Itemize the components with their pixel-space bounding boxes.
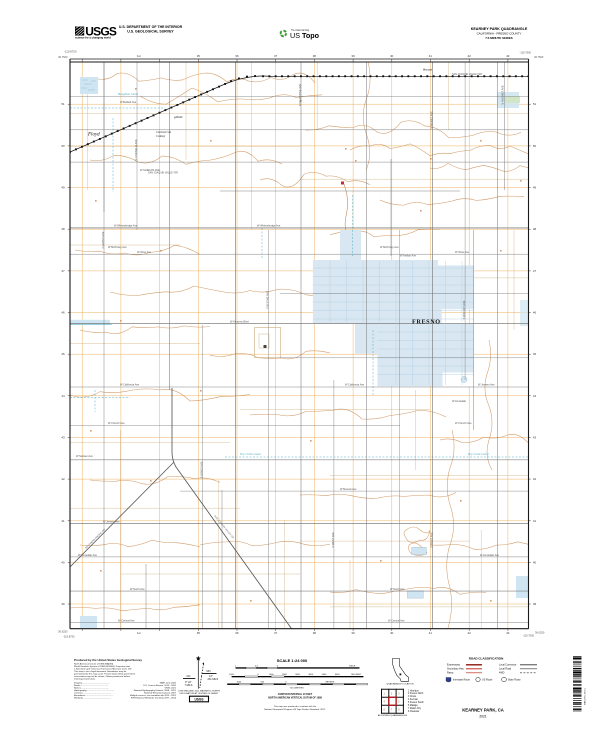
svg-text:ROAD CLASSIFICATION: ROAD CLASSIFICATION — [469, 656, 504, 660]
svg-text:7 Raisin City: 7 Raisin City — [408, 707, 422, 710]
svg-text:S BLYTHE AVE: S BLYTHE AVE — [265, 291, 269, 309]
svg-text:W Olive Ave: W Olive Ave — [455, 250, 470, 254]
svg-text:44: 44 — [61, 394, 65, 398]
svg-text:43: 43 — [61, 435, 65, 439]
svg-text:Expressway: Expressway — [447, 664, 461, 667]
svg-text:DECLINATION AT CENTER OF SHEET: DECLINATION AT CENTER OF SHEET — [180, 692, 219, 695]
svg-text:48: 48 — [61, 227, 65, 231]
svg-text:42: 42 — [467, 54, 471, 58]
svg-text:42: 42 — [467, 631, 471, 635]
svg-text:FRESNO: FRESNO — [412, 318, 441, 325]
svg-text:US Route: US Route — [482, 678, 493, 681]
svg-text:U.S. GEOLOGICAL SURVEY: U.S. GEOLOGICAL SURVEY — [127, 30, 174, 34]
svg-text:W California Ave: W California Ave — [120, 383, 140, 387]
svg-text:36: 36 — [235, 54, 239, 58]
svg-text:ISBN 978-1-6637-1: ISBN 978-1-6637-1 — [585, 687, 587, 705]
svg-text:36.7500: 36.7500 — [534, 55, 544, 59]
svg-text:Colony: Colony — [156, 134, 166, 138]
svg-text:45: 45 — [533, 352, 537, 356]
svg-text:W Bullard Ave: W Bullard Ave — [120, 100, 137, 104]
svg-text:W Kearney Blvd: W Kearney Blvd — [230, 320, 249, 324]
svg-text:W Jensen Ave: W Jensen Ave — [103, 519, 120, 523]
svg-text:51: 51 — [61, 102, 65, 106]
svg-text:S WEST AVE: S WEST AVE — [331, 532, 335, 548]
svg-text:Houghton Canal: Houghton Canal — [117, 92, 138, 96]
svg-text:USGS: USGS — [194, 698, 203, 702]
svg-text:46: 46 — [61, 311, 65, 315]
svg-text:GN: GN — [187, 675, 191, 678]
svg-text:W Muscat Ave: W Muscat Ave — [340, 487, 357, 491]
svg-text:W Central Ave: W Central Ave — [118, 619, 135, 623]
svg-text:W Whitesbridge Ave: W Whitesbridge Ave — [257, 224, 281, 228]
svg-text:39: 39 — [351, 631, 355, 635]
svg-text:41: 41 — [61, 519, 65, 523]
svg-text:S FRUIT AVE: S FRUIT AVE — [430, 532, 434, 548]
svg-text:1 MILE: 1 MILE — [349, 665, 356, 667]
svg-text:S HAYES AVE: S HAYES AVE — [200, 461, 204, 478]
svg-text:3 Clovis: 3 Clovis — [408, 696, 417, 698]
svg-text:W California Ave: W California Ave — [345, 383, 365, 387]
svg-text:1m: 1m — [137, 631, 142, 635]
svg-text:1 Herndon: 1 Herndon — [408, 689, 419, 692]
svg-text:49: 49 — [61, 186, 65, 190]
svg-text:entering private lands.: entering private lands. — [74, 677, 96, 680]
svg-text:44: 44 — [533, 394, 537, 398]
svg-text:43: 43 — [506, 631, 510, 635]
svg-text:46: 46 — [533, 311, 537, 315]
svg-text:-119.7500: -119.7500 — [523, 634, 535, 638]
svg-text:40: 40 — [533, 560, 537, 564]
svg-text:49: 49 — [533, 186, 537, 190]
svg-text:4 Kerman: 4 Kerman — [408, 698, 419, 701]
svg-text:2 Fresno North: 2 Fresno North — [408, 692, 424, 695]
svg-text:N VALENTINE AVE: N VALENTINE AVE — [298, 84, 302, 107]
svg-text:40: 40 — [390, 54, 394, 58]
svg-text:N HAYES AVE: N HAYES AVE — [101, 231, 105, 248]
svg-text:gillette: gillette — [174, 115, 183, 119]
svg-text:U.S. DEPARTMENT OF THE INTERIO: U.S. DEPARTMENT OF THE INTERIOR — [119, 25, 183, 29]
svg-text:50: 50 — [61, 144, 65, 148]
svg-text:48: 48 — [533, 227, 537, 231]
svg-text:7000 FEET: 7000 FEET — [351, 674, 362, 676]
svg-text:Ramp: Ramp — [447, 672, 454, 675]
svg-text:37: 37 — [274, 631, 278, 635]
svg-text:41: 41 — [429, 54, 433, 58]
svg-text:State Route: State Route — [508, 678, 521, 681]
svg-text:W Whitesbridge Ave: W Whitesbridge Ave — [114, 224, 138, 228]
svg-text:40: 40 — [390, 631, 394, 635]
svg-text:W Annadale Ave: W Annadale Ave — [480, 553, 500, 557]
svg-text:Bryant: Bryant — [423, 68, 433, 72]
svg-text:W North Ave: W North Ave — [130, 587, 145, 591]
svg-text:37: 37 — [274, 54, 278, 58]
svg-text:2021: 2021 — [479, 715, 487, 719]
svg-text:W Annadale: W Annadale — [452, 399, 467, 403]
svg-text:51: 51 — [533, 102, 537, 106]
svg-text:US Topo: US Topo — [290, 31, 320, 40]
svg-text:36.7500: 36.7500 — [58, 55, 68, 59]
svg-text:39: 39 — [351, 54, 355, 58]
svg-text:W McKinley Ave: W McKinley Ave — [380, 245, 399, 249]
svg-text:-119.8750: -119.8750 — [63, 635, 75, 639]
svg-text:SAN JOAQUIN VALLEY RR: SAN JOAQUIN VALLEY RR — [452, 73, 482, 76]
svg-text:KEARNEY PARK, CA: KEARNEY PARK, CA — [462, 708, 504, 713]
svg-text:N CORNELIA AVE: N CORNELIA AVE — [134, 139, 138, 161]
svg-text:W Nielsen Ave: W Nielsen Ave — [76, 454, 93, 458]
svg-text:50: 50 — [533, 144, 537, 148]
svg-text:35: 35 — [197, 631, 201, 635]
svg-text:NORTH AMERICAN VERTICAL DATUM: NORTH AMERICAN VERTICAL DATUM OF 1988 — [268, 697, 322, 700]
svg-text:39: 39 — [533, 602, 537, 606]
svg-text:Dry Creek Canal: Dry Creek Canal — [239, 452, 261, 456]
svg-text:7.5-MINUTE SERIES: 7.5-MINUTE SERIES — [485, 36, 513, 40]
svg-text:41: 41 — [429, 631, 433, 635]
svg-text:QUADRANGLE LOCATION: QUADRANGLE LOCATION — [387, 682, 414, 685]
svg-text:35: 35 — [197, 54, 201, 58]
svg-text:41: 41 — [533, 519, 537, 523]
svg-text:Local Road: Local Road — [499, 668, 512, 671]
svg-text:W Jensen Ave: W Jensen Ave — [478, 382, 495, 386]
svg-text:-119.7500: -119.7500 — [520, 51, 532, 55]
svg-text:N HUGHES AVE: N HUGHES AVE — [501, 85, 505, 105]
svg-text:Local Connector: Local Connector — [499, 664, 517, 667]
svg-text:Wetlands......................: Wetlands................................… — [74, 696, 111, 699]
svg-text:W Olive Ave: W Olive Ave — [137, 250, 152, 254]
svg-text:231 MILS: 231 MILS — [208, 678, 219, 681]
svg-text:36.6250: 36.6250 — [58, 630, 68, 634]
svg-text:W McKinley Ave: W McKinley Ave — [108, 245, 127, 249]
svg-text:W Annadale Ave: W Annadale Ave — [78, 553, 98, 557]
svg-text:8 Oleander: 8 Oleander — [408, 710, 420, 713]
svg-text:FWS National Wetlands Inventor: FWS National Wetlands Inventory 1977 - 2… — [131, 696, 177, 699]
svg-text:UTM GRID AND 2021 MAGNETIC NOR: UTM GRID AND 2021 MAGNETIC NORTH — [178, 690, 220, 693]
svg-text:7 MILS: 7 MILS — [185, 684, 193, 687]
svg-text:METERS: METERS — [326, 681, 335, 683]
svg-text:Interstate Route: Interstate Route — [453, 678, 471, 681]
svg-text:5 Fresno South: 5 Fresno South — [408, 701, 424, 704]
svg-text:38: 38 — [313, 54, 317, 58]
svg-text:-119.8750: -119.8750 — [64, 50, 77, 54]
svg-text:1m: 1m — [137, 54, 142, 58]
svg-text:KEARNEY PARK QUADRANGLE: KEARNEY PARK QUADRANGLE — [471, 27, 528, 31]
svg-text:Secondary Hwy: Secondary Hwy — [447, 668, 465, 671]
svg-text:45: 45 — [61, 352, 65, 356]
svg-text:National Geospatial Program US: National Geospatial Program US Topo Prod… — [264, 708, 326, 711]
svg-text:42: 42 — [61, 477, 65, 481]
svg-text:ADJOINING QUADRANGLES: ADJOINING QUADRANGLES — [378, 714, 408, 717]
svg-text:MN: MN — [207, 670, 211, 673]
svg-text:Dry Creek Canal: Dry Creek Canal — [467, 452, 489, 456]
svg-text:This map was produced to confo: This map was produced to conform with th… — [274, 705, 317, 708]
svg-text:W Ashlan Ave: W Ashlan Ave — [400, 253, 417, 257]
svg-text:4WD: 4WD — [499, 672, 505, 675]
svg-text:S WALNUT AVE: S WALNUT AVE — [462, 300, 466, 319]
svg-text:36.6250: 36.6250 — [535, 631, 545, 635]
svg-text:47: 47 — [533, 269, 537, 273]
svg-text:38: 38 — [313, 631, 317, 635]
svg-text:40: 40 — [61, 560, 65, 564]
svg-text:43: 43 — [533, 435, 537, 439]
svg-text:KILOMETERS: KILOMETERS — [290, 687, 304, 689]
svg-text:39: 39 — [61, 602, 65, 606]
svg-text:SAN JOAQUIN VALLEY RR: SAN JOAQUIN VALLEY RR — [148, 172, 178, 175]
svg-text:W Central Ave: W Central Ave — [388, 619, 405, 623]
svg-text:SCALE 1:24 000: SCALE 1:24 000 — [277, 658, 308, 663]
svg-text:43: 43 — [506, 54, 510, 58]
svg-text:W North Ave: W North Ave — [390, 587, 405, 591]
svg-text:42: 42 — [533, 477, 537, 481]
svg-text:science for a changing world: science for a changing world — [75, 36, 111, 40]
svg-text:W Church Ave: W Church Ave — [455, 421, 472, 425]
svg-text:W Church Ave: W Church Ave — [108, 421, 125, 425]
svg-text:N MARKS AVE: N MARKS AVE — [430, 111, 434, 129]
svg-text:Floyd: Floyd — [87, 133, 100, 138]
svg-text:36: 36 — [235, 631, 239, 635]
svg-text:Produced by the United States: Produced by the United States Geological… — [74, 658, 142, 662]
svg-text:47: 47 — [61, 269, 65, 273]
svg-text:6 Malaga: 6 Malaga — [408, 705, 418, 707]
